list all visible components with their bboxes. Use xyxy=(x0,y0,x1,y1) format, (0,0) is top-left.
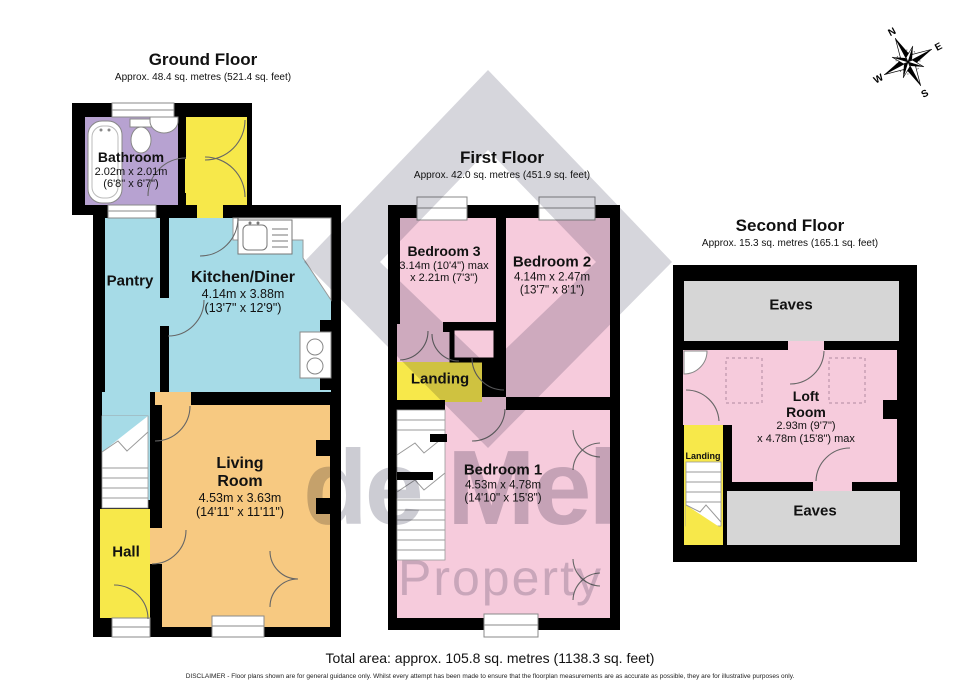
room-label-bedroom-3: Bedroom 3 3.14m (10'4") max x 2.21m (7'3… xyxy=(399,244,488,284)
total-area-text: Total area: approx. 105.8 sq. metres (11… xyxy=(326,650,655,666)
room-label-bedroom-1: Bedroom 1 4.53m x 4.78m (14'10" x 15'8") xyxy=(464,463,542,506)
compass-east-label: E xyxy=(933,41,944,54)
floorplan-drawing: N E S W xyxy=(0,0,980,690)
room-label-bathroom: Bathroom 2.02m x 2.01m (6'8" x 6'7") xyxy=(95,150,168,190)
room-label-eaves-top: Eaves xyxy=(769,298,812,315)
kitchen-sink xyxy=(238,220,292,254)
compass-south-label: S xyxy=(920,88,931,101)
room-label-kitchen-diner: Kitchen/Diner 4.14m x 3.88m (13'7" x 12'… xyxy=(191,269,295,315)
bedroom2-area xyxy=(506,218,610,398)
room-label-pantry: Pantry xyxy=(107,274,154,291)
room-label-eaves-bottom: Eaves xyxy=(793,504,836,521)
room-label-bedroom-2: Bedroom 2 4.14m x 2.47m (13'7" x 8'1") xyxy=(513,255,591,298)
cooker xyxy=(300,332,331,378)
compass-west-label: W xyxy=(872,72,886,86)
hall-area xyxy=(100,508,150,618)
room-label-hall: Hall xyxy=(112,545,140,562)
stairs-ground xyxy=(102,416,148,508)
compass-rose-icon: N E S W xyxy=(855,10,960,117)
compass-north-label: N xyxy=(886,26,898,39)
room-label-living-room: Living Room 4.53m x 3.63m (14'11" x 11'1… xyxy=(196,455,284,519)
room-label-landing-2: Landing xyxy=(686,451,721,461)
disclaimer-text: DISCLAIMER - Floor plans shown are for g… xyxy=(186,673,795,680)
room-label-loft-room: Loft Room 2.93m (9'7") x 4.78m (15'8") m… xyxy=(757,389,855,445)
stairs-cupboard xyxy=(452,328,496,360)
stairs-first xyxy=(397,410,445,560)
floorplan-page: N E S W de Mel Property Ground Floor App… xyxy=(0,0,980,690)
entrance-lobby-area xyxy=(185,117,247,205)
room-label-landing-1: Landing xyxy=(411,372,469,389)
stairs-second xyxy=(686,462,721,528)
